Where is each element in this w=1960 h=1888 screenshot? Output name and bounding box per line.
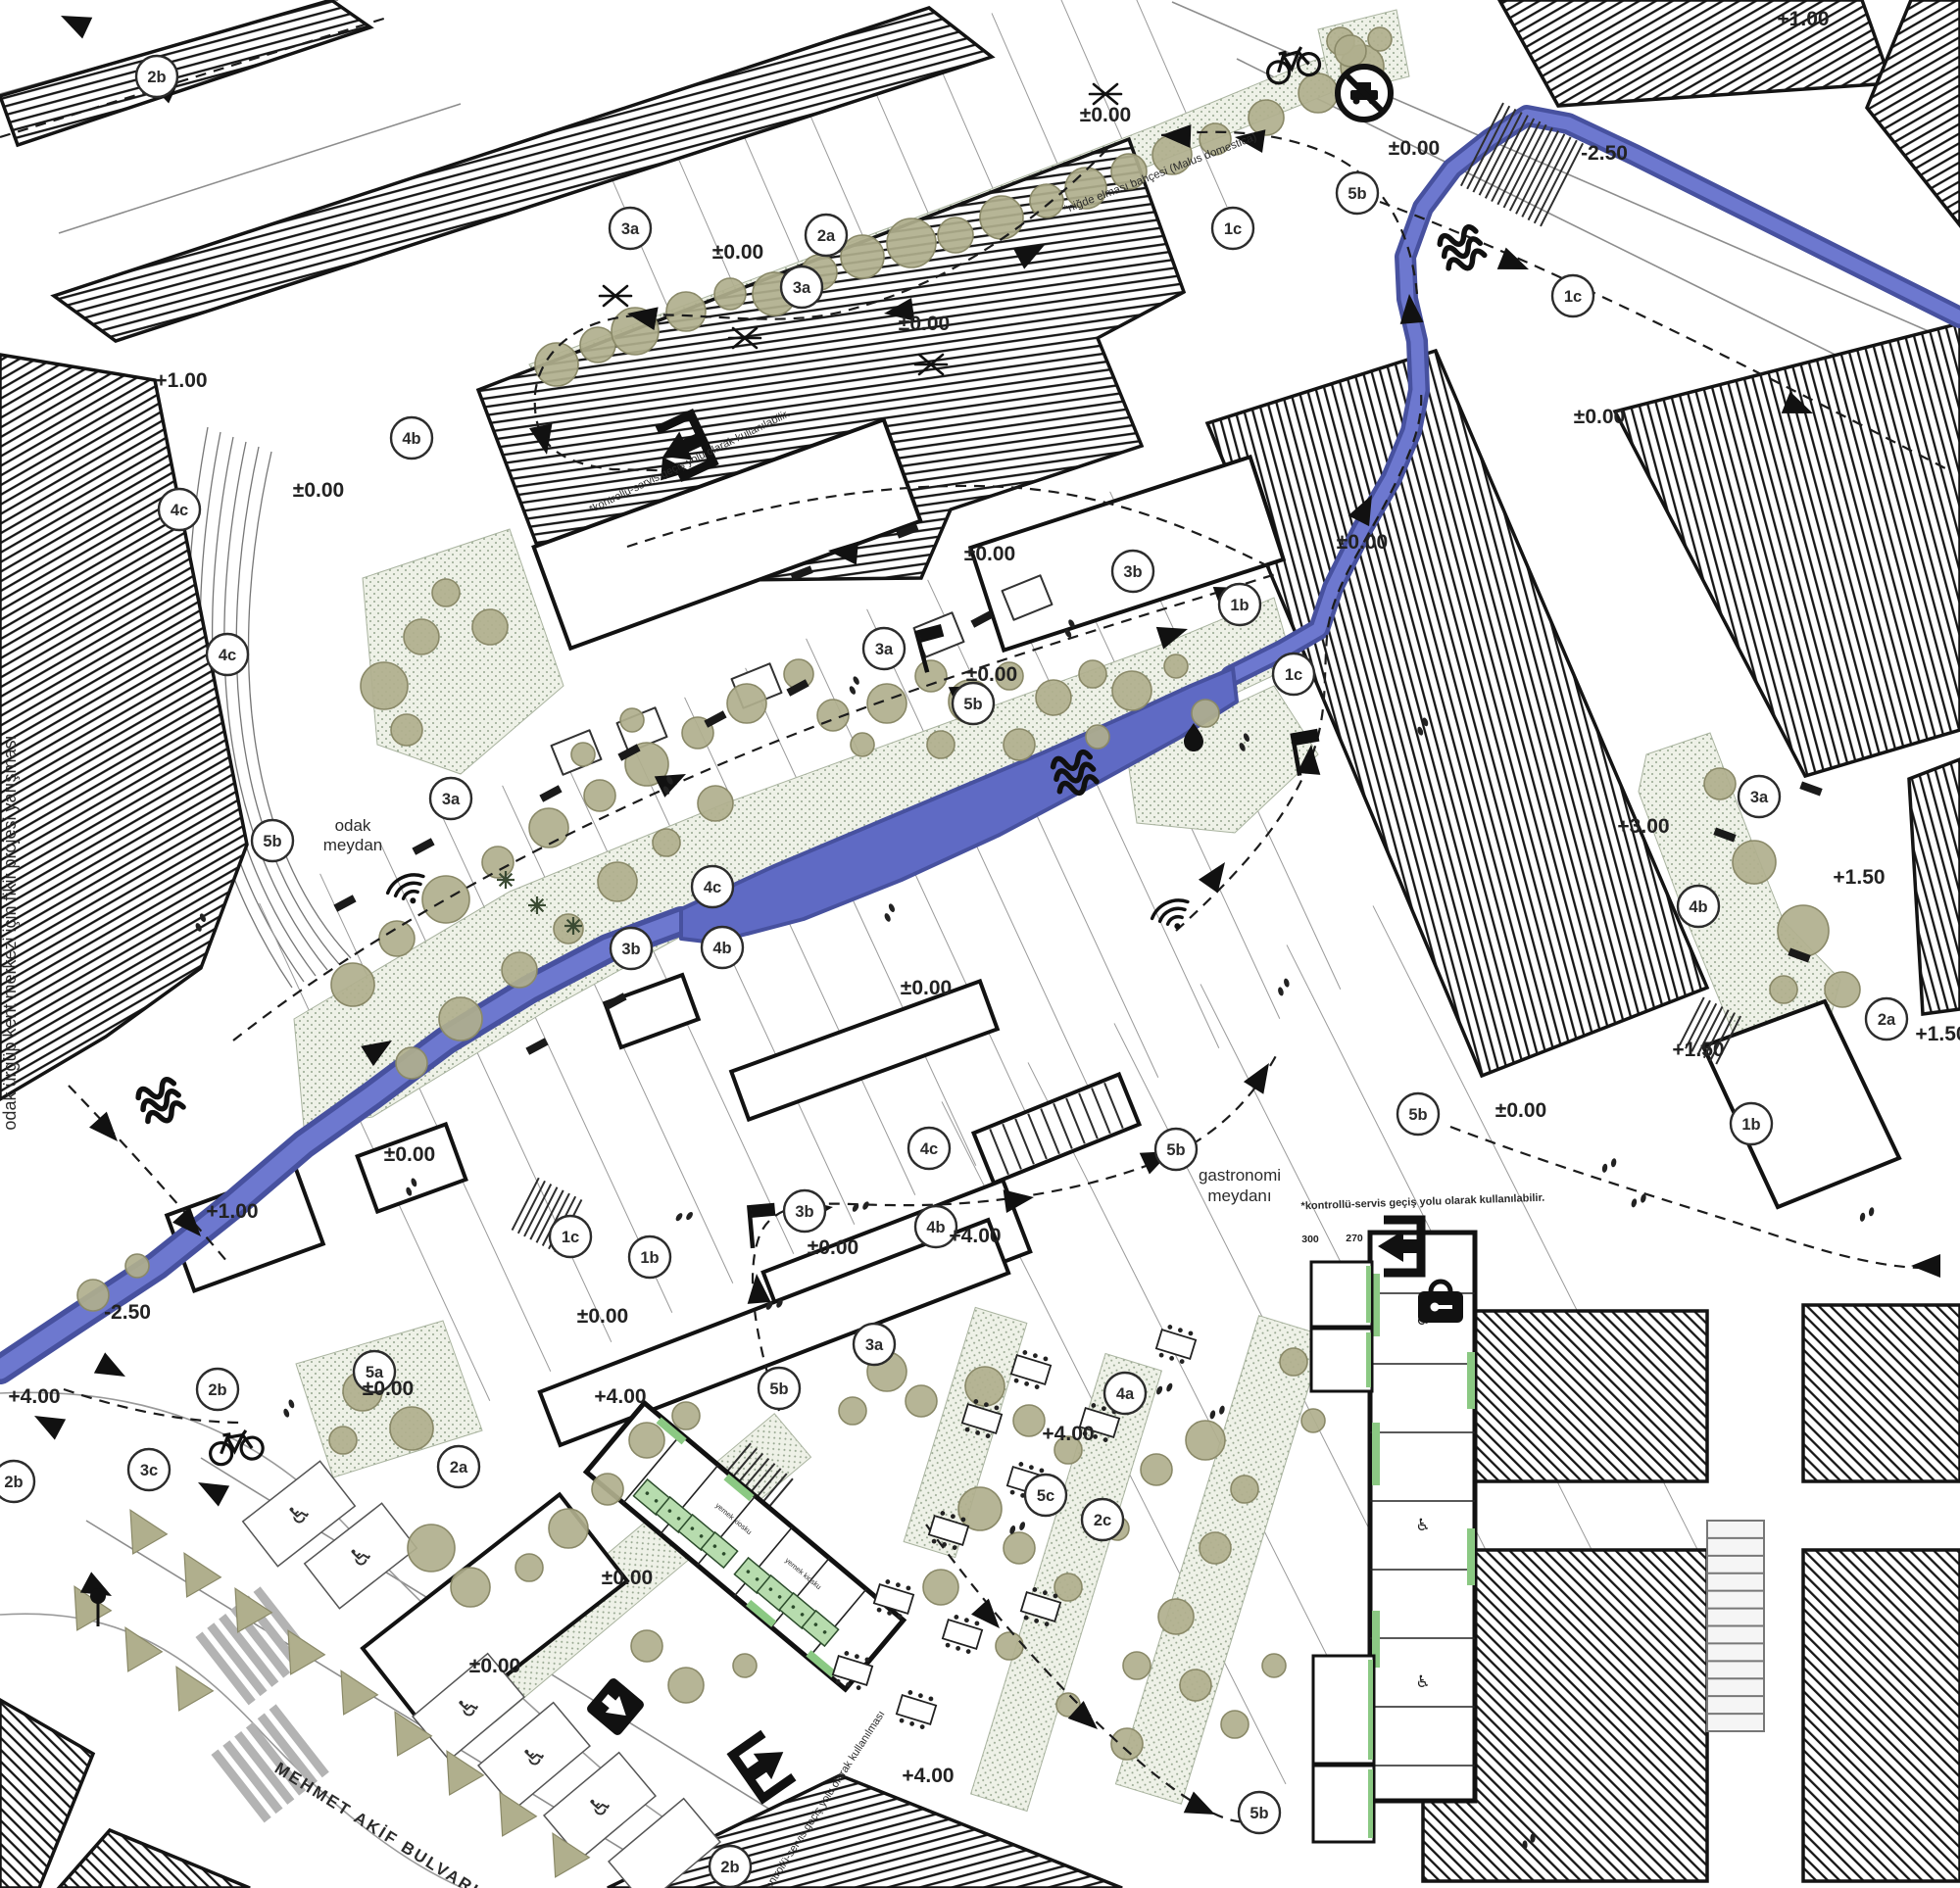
zone-marker-label: 1c	[562, 1229, 579, 1246]
elevation-label: +1.00	[155, 369, 207, 392]
zone-marker-label: 5b	[1249, 1805, 1268, 1822]
wheelchair-icon: ♿	[1415, 1516, 1430, 1534]
zone-marker: 1c	[550, 1216, 591, 1257]
tree	[1054, 1573, 1082, 1601]
zone-marker-label: 1b	[1741, 1116, 1760, 1134]
zone-marker: 3b	[611, 928, 652, 969]
corridor-room	[1311, 1329, 1372, 1391]
zone-marker-label: 5b	[1408, 1106, 1427, 1124]
tree	[938, 218, 973, 253]
zone-marker: 3a	[430, 778, 471, 819]
tree	[554, 914, 583, 944]
elevation-label: ±0.00	[1495, 1099, 1546, 1122]
elevation-label: ±0.00	[1389, 137, 1440, 160]
tree	[1770, 976, 1797, 1003]
tree	[620, 708, 644, 732]
zone-marker-label: 1b	[640, 1249, 659, 1267]
tree	[1231, 1476, 1258, 1503]
tree	[631, 1630, 662, 1662]
zone-marker-label: 3a	[621, 220, 640, 238]
tree	[502, 952, 537, 988]
elevation-label: -2.50	[104, 1301, 151, 1324]
green-accent	[1366, 1332, 1371, 1387]
tree	[1158, 1599, 1194, 1634]
elevation-label: ±0.00	[384, 1143, 435, 1166]
tree	[980, 196, 1023, 239]
tree	[396, 1047, 427, 1079]
green-accent	[1368, 1769, 1373, 1838]
tree	[432, 579, 460, 606]
elevation-label: ±0.00	[712, 241, 763, 264]
text-label: meydan	[323, 836, 382, 854]
zone-marker: 4a	[1104, 1373, 1146, 1414]
tree	[404, 619, 439, 654]
tree	[1335, 35, 1366, 67]
zone-marker-label: 2b	[720, 1859, 739, 1876]
corridor-room	[1313, 1656, 1374, 1764]
tree	[666, 292, 706, 331]
wheelchair-icon: ♿	[1415, 1672, 1430, 1691]
zone-marker: 2a	[1866, 998, 1907, 1040]
corridor-room	[1313, 1766, 1374, 1842]
zone-marker-label: 3c	[140, 1462, 158, 1479]
elevation-label: -2.50	[1581, 142, 1628, 165]
shrub-icon	[528, 896, 546, 914]
tree	[698, 786, 733, 821]
tree	[629, 1423, 664, 1458]
tree	[391, 714, 422, 746]
zone-marker-label: 4a	[1116, 1385, 1135, 1403]
zone-marker-label: 2b	[208, 1381, 226, 1399]
elevation-label: ±0.00	[1574, 406, 1625, 428]
elevation-label: +4.00	[949, 1225, 1001, 1247]
corridor-room	[1311, 1262, 1372, 1327]
elevation-label: ±0.00	[293, 479, 344, 502]
no-cars-icon	[1338, 67, 1391, 120]
tree	[841, 235, 884, 278]
text-label: odak	[335, 816, 371, 835]
tree	[1111, 1728, 1143, 1760]
tree	[1298, 73, 1338, 113]
tree	[965, 1367, 1004, 1406]
tree	[1825, 972, 1860, 1007]
zone-marker: 5b	[953, 683, 994, 724]
dimension-label: 270	[1346, 1233, 1363, 1244]
tree	[408, 1525, 455, 1572]
tree	[1112, 671, 1151, 710]
zone-marker: 5c	[1025, 1475, 1066, 1516]
elevation-label: +3.00	[1617, 815, 1669, 838]
shrub-icon	[564, 917, 582, 935]
zone-marker-label: 3a	[865, 1336, 884, 1354]
tree	[482, 847, 514, 878]
zone-marker-label: 2c	[1094, 1512, 1111, 1529]
dimension-label: 300	[1301, 1234, 1319, 1245]
tree	[472, 609, 508, 645]
zone-marker-label: 4b	[1689, 898, 1707, 916]
elevation-label: +1.00	[1777, 8, 1829, 30]
zone-marker-label: 3b	[795, 1203, 813, 1221]
zone-marker-label: 3b	[621, 941, 640, 958]
zone-marker: 4c	[692, 866, 733, 907]
zone-marker-label: 3a	[442, 791, 461, 808]
zone-marker: 2c	[1082, 1499, 1123, 1540]
zone-marker-label: 2b	[147, 69, 166, 86]
zone-marker: 4c	[207, 634, 248, 675]
green-accent	[1366, 1266, 1371, 1323]
tree	[923, 1570, 958, 1605]
green-accent	[1368, 1660, 1373, 1760]
zone-marker: 5b	[1155, 1129, 1197, 1170]
tree	[331, 963, 374, 1006]
zone-marker: 1c	[1212, 208, 1253, 249]
tree	[672, 1402, 700, 1429]
tree	[839, 1397, 866, 1425]
tree	[1249, 100, 1284, 135]
building	[1803, 1550, 1960, 1881]
tree	[958, 1487, 1002, 1530]
elevation-label: ±0.00	[966, 663, 1017, 686]
zone-marker: 2b	[136, 56, 177, 97]
zone-marker: 4b	[702, 927, 743, 968]
zone-marker: 5b	[1239, 1792, 1280, 1833]
zone-marker-label: 2a	[450, 1459, 468, 1477]
elevation-label: ±0.00	[1337, 531, 1388, 554]
zone-marker: 3b	[1112, 551, 1153, 592]
tree	[1004, 729, 1035, 760]
zone-marker-label: 2a	[1878, 1011, 1896, 1029]
zone-marker: 4c	[908, 1128, 950, 1169]
zone-marker: 3a	[1739, 776, 1780, 817]
tree	[535, 343, 578, 386]
zone-marker-label: 5b	[1166, 1141, 1185, 1159]
tree	[1301, 1409, 1325, 1432]
tree	[1192, 700, 1219, 727]
zone-marker: 4c	[159, 489, 200, 530]
zone-marker-label: 4c	[704, 879, 721, 896]
tree	[1200, 1532, 1231, 1564]
elevation-label: +1.00	[206, 1200, 258, 1223]
zone-marker-label: 1c	[1285, 666, 1302, 684]
text-label: meydanı	[1207, 1186, 1271, 1205]
zone-marker: 1b	[1731, 1103, 1772, 1144]
elevation-label: +4.00	[1042, 1423, 1094, 1445]
zone-marker: 5b	[1337, 172, 1378, 214]
tree	[727, 684, 766, 723]
tree	[1733, 841, 1776, 884]
zone-marker: 5b	[759, 1368, 800, 1409]
tree	[1013, 1405, 1045, 1436]
tree	[1141, 1454, 1172, 1485]
tree	[451, 1568, 490, 1607]
tree	[125, 1254, 149, 1278]
zone-marker-label: 5b	[263, 833, 281, 850]
zone-marker: 4b	[391, 417, 432, 459]
elevation-label: ±0.00	[1080, 104, 1131, 126]
elevation-label: ±0.00	[899, 313, 950, 335]
tree	[733, 1654, 757, 1677]
tree	[580, 327, 615, 363]
tree	[549, 1509, 588, 1548]
zone-marker: 3a	[854, 1324, 895, 1365]
zone-marker-label: 1c	[1564, 288, 1582, 306]
zone-marker: 3a	[781, 266, 822, 308]
zone-marker: 2b	[710, 1846, 751, 1887]
tree	[1086, 725, 1109, 749]
tree	[1180, 1670, 1211, 1701]
tree	[1036, 680, 1071, 715]
tree	[390, 1407, 433, 1450]
tree	[329, 1427, 357, 1454]
tree	[867, 684, 906, 723]
tree	[529, 808, 568, 847]
zone-marker: 1b	[629, 1236, 670, 1278]
zone-marker-label: 4c	[920, 1140, 938, 1158]
tree	[1704, 768, 1736, 799]
tree	[571, 743, 595, 766]
green-accent	[1467, 1352, 1475, 1409]
zone-marker: 5b	[1397, 1093, 1439, 1135]
tree	[653, 829, 680, 856]
zone-marker: 3b	[784, 1190, 825, 1232]
tree	[598, 862, 637, 901]
elevation-label: ±0.00	[602, 1567, 653, 1589]
zone-marker: 5b	[252, 820, 293, 861]
elevation-label: ±0.00	[808, 1236, 858, 1259]
elevation-label: ±0.00	[577, 1305, 628, 1328]
zone-marker-label: 4b	[926, 1219, 945, 1236]
tree	[915, 660, 947, 692]
zone-marker: 1c	[1552, 275, 1593, 316]
shrub-icon	[497, 871, 514, 889]
green-accent	[1372, 1423, 1380, 1485]
tree	[1262, 1654, 1286, 1677]
tree	[906, 1385, 937, 1417]
tree	[361, 662, 408, 709]
zone-marker-label: 3b	[1123, 563, 1142, 581]
tree	[422, 876, 469, 923]
zone-marker-label: 3a	[1750, 789, 1769, 806]
elevation-label: +4.00	[902, 1765, 954, 1787]
tree	[714, 278, 746, 310]
zone-marker: 1c	[1273, 654, 1314, 695]
elevation-label: +4.00	[594, 1385, 646, 1408]
tree	[1280, 1348, 1307, 1376]
zone-marker: 3c	[128, 1449, 170, 1490]
zone-marker-label: 5c	[1037, 1487, 1054, 1505]
tree	[515, 1554, 543, 1581]
tree	[927, 731, 955, 758]
zone-marker-label: 4b	[712, 940, 731, 957]
elevation-label: +1.50	[1833, 866, 1885, 889]
zone-marker-label: 5b	[1347, 185, 1366, 203]
zone-marker: 2a	[806, 215, 847, 256]
elevation-label: +1.50	[1915, 1023, 1960, 1045]
zone-marker: 3a	[610, 208, 651, 249]
tree	[1123, 1652, 1151, 1679]
tree	[379, 921, 415, 956]
zone-marker-label: 5b	[769, 1380, 788, 1398]
tree	[668, 1668, 704, 1703]
tree	[887, 218, 936, 267]
zone-marker: 2b	[197, 1369, 238, 1410]
site-plan: ♿♿♿♿♿♿♿♿2b3a3a2a1c5b1c4c4b4c3b1b1c3a5b3a…	[0, 0, 1960, 1888]
zone-marker-label: 2a	[817, 227, 836, 245]
tree	[1079, 660, 1106, 688]
zone-marker-label: 3a	[875, 641, 894, 658]
zone-marker: 4b	[1678, 886, 1719, 927]
zone-marker: 2a	[438, 1446, 479, 1487]
zone-marker-label: 1c	[1224, 220, 1242, 238]
tree	[996, 1632, 1023, 1660]
elevation-label: ±0.00	[469, 1655, 520, 1677]
green-accent	[1467, 1528, 1475, 1585]
tree	[1778, 905, 1829, 956]
site-plan-svg: ♿♿♿♿♿♿♿♿2b3a3a2a1c5b1c4c4b4c3b1b1c3a5b3a…	[0, 0, 1960, 1888]
zone-marker-label: 4c	[219, 647, 236, 664]
zone-marker-label: 4c	[171, 502, 188, 519]
tree	[592, 1474, 623, 1505]
elevation-label: ±0.00	[964, 543, 1015, 565]
tree	[851, 733, 874, 756]
stair-ladder	[1707, 1521, 1764, 1731]
zone-marker-label: 1b	[1230, 597, 1249, 614]
elevation-label: +1.50	[1672, 1039, 1724, 1061]
zone-marker: 3a	[863, 628, 905, 669]
zone-marker-label: 5b	[963, 696, 982, 713]
zone-marker: 2b	[0, 1461, 34, 1502]
zone-marker-label: 4b	[402, 430, 420, 448]
tree	[1221, 1711, 1249, 1738]
tree	[584, 780, 615, 811]
elevation-label: ±0.00	[901, 977, 952, 999]
tree	[1004, 1532, 1035, 1564]
zone-marker-label: 3a	[793, 279, 811, 297]
text-label: gastronomi	[1199, 1166, 1281, 1185]
tree	[1164, 654, 1188, 678]
zone-marker: 1b	[1219, 584, 1260, 625]
elevation-label: ±0.00	[363, 1378, 414, 1400]
tree	[1186, 1421, 1225, 1460]
elevation-label: +4.00	[8, 1385, 60, 1408]
zone-marker-label: 2b	[4, 1474, 23, 1491]
tree	[1030, 184, 1063, 218]
tree	[439, 997, 482, 1041]
text-label: odak ürgüp kent merkezi için fikir proje…	[0, 735, 20, 1130]
building	[1803, 1305, 1960, 1481]
tree	[1368, 27, 1392, 51]
